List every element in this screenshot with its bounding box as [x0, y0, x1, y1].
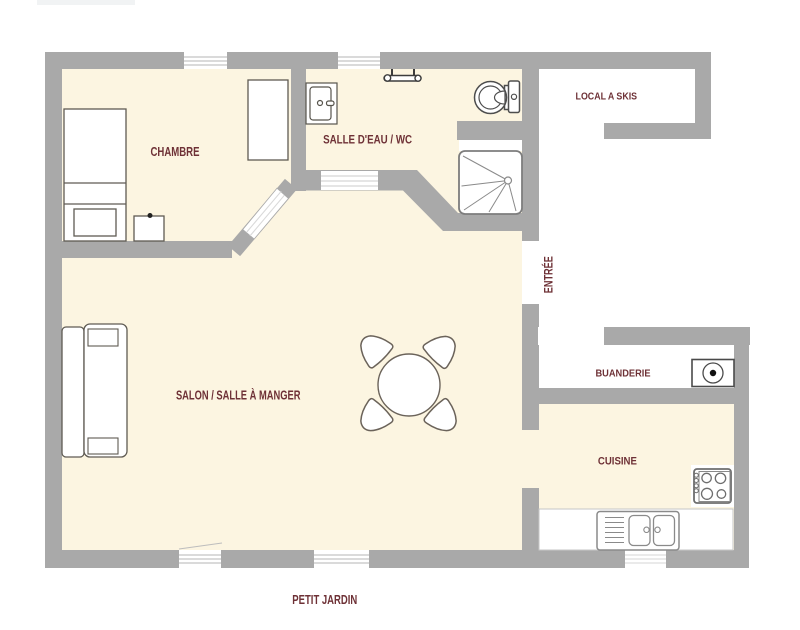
- svg-text:ENTRÉE: ENTRÉE: [541, 256, 556, 293]
- svg-text:LOCAL A SKIS: LOCAL A SKIS: [576, 92, 638, 103]
- svg-text:BUANDERIE: BUANDERIE: [596, 368, 651, 380]
- svg-text:SALON / SALLE À MANGER: SALON / SALLE À MANGER: [176, 388, 301, 403]
- svg-text:SALLE D'EAU / WC: SALLE D'EAU / WC: [323, 133, 412, 147]
- svg-text:CHAMBRE: CHAMBRE: [151, 144, 200, 159]
- svg-text:CUISINE: CUISINE: [598, 456, 637, 468]
- svg-text:PETIT JARDIN: PETIT JARDIN: [292, 592, 357, 607]
